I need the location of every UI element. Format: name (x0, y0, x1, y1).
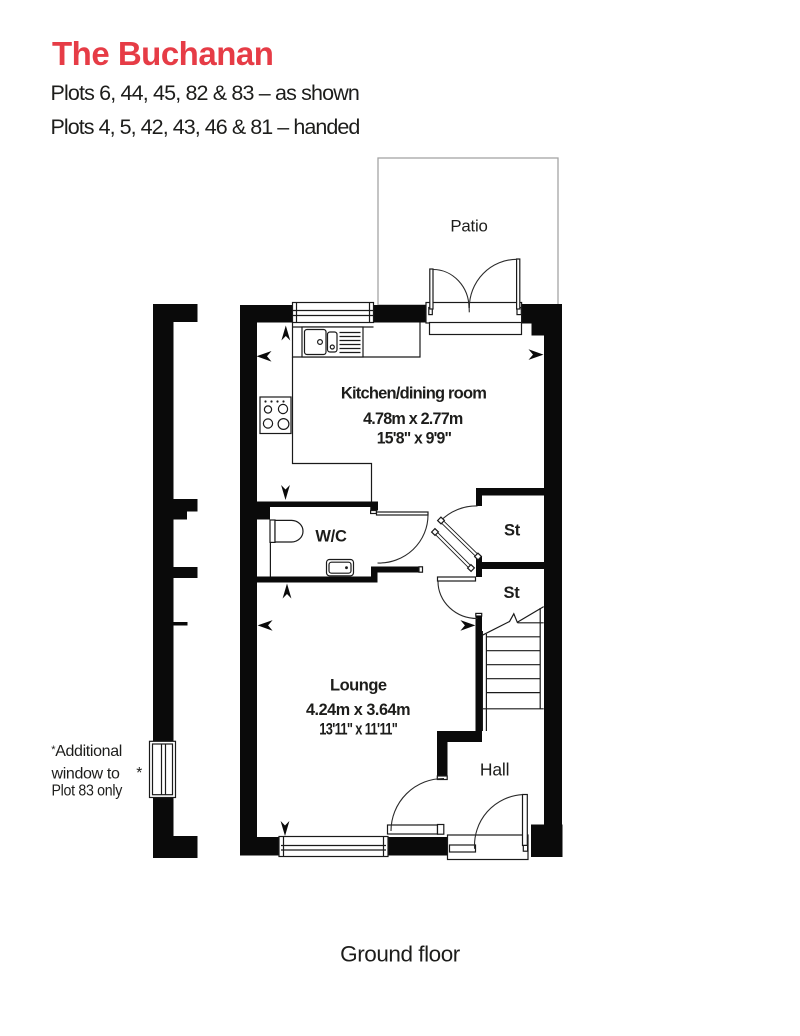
svg-text:Plots 6, 44, 45, 82 & 83 – as: Plots 6, 44, 45, 82 & 83 – as shown (51, 81, 360, 105)
svg-text:Ground floor: Ground floor (340, 941, 461, 966)
svg-text:Kitchen/dining room: Kitchen/dining room (341, 385, 486, 403)
svg-text:15'8" x 9'9": 15'8" x 9'9" (377, 429, 452, 447)
svg-text:St: St (504, 522, 521, 540)
svg-text:Plot 83 only: Plot 83 only (52, 783, 123, 800)
svg-text:13'11" x 11'11": 13'11" x 11'11" (319, 720, 397, 738)
svg-text:Hall: Hall (480, 759, 509, 779)
svg-text:4.24m x 3.64m: 4.24m x 3.64m (306, 701, 410, 719)
svg-text:The Buchanan: The Buchanan (52, 35, 273, 72)
svg-text:St: St (504, 584, 521, 602)
svg-text:W/C: W/C (315, 528, 347, 546)
svg-text:Lounge: Lounge (330, 677, 387, 695)
svg-text:4.78m x 2.77m: 4.78m x 2.77m (363, 410, 463, 428)
svg-text:Patio: Patio (450, 216, 487, 235)
svg-text:window to: window to (51, 766, 120, 783)
svg-text:Additional: Additional (55, 743, 122, 760)
svg-text:*: * (136, 765, 142, 782)
svg-text:Plots 4, 5, 42, 43, 46 & 81 –: Plots 4, 5, 42, 43, 46 & 81 – handed (51, 115, 360, 139)
